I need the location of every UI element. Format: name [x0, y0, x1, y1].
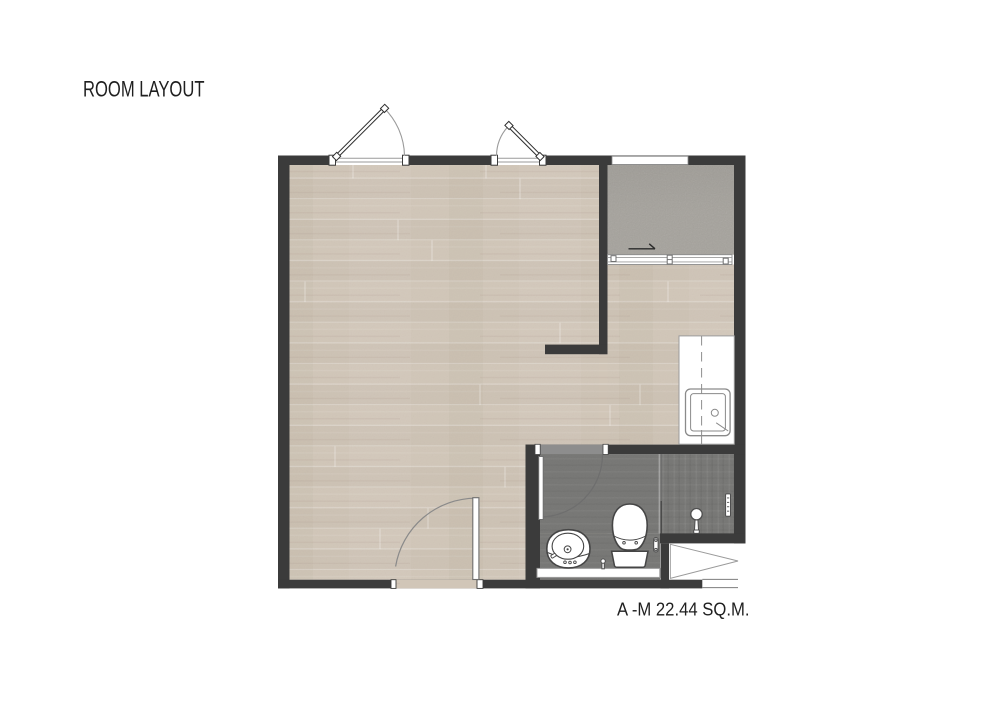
svg-text:A -M 22.44 SQ.M.: A -M 22.44 SQ.M.	[617, 599, 750, 619]
svg-text:ROOM LAYOUT: ROOM LAYOUT	[83, 77, 205, 102]
